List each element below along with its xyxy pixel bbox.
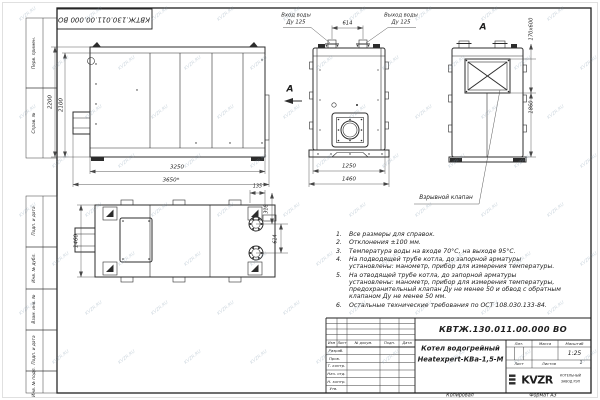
frame-label-vzam-inv: Взам. инв. № (32, 294, 36, 323)
row-label-nachotd: Нач. отд. (327, 372, 345, 376)
col-header-list: Лист (337, 342, 346, 346)
explosion-valve-label: Взрывной клапан (419, 196, 473, 202)
company-logo: KVZR (521, 374, 552, 385)
technical-notes: 1.Все размеры для справок. 2.Отклонения … (336, 231, 562, 310)
dim-pipe-spacing: 614 (342, 21, 352, 26)
note-item: 5.На отводящей трубе котла, до запорной … (336, 272, 562, 301)
drawing-linework (0, 0, 600, 400)
frame-label-inv-podl: Инв. № подл. (32, 367, 36, 397)
water-inlet-label: Вход воды (281, 13, 311, 18)
top-view-linework (75, 190, 288, 282)
format-label: Формат А3 (529, 394, 556, 399)
dim-front-width-outer: 1460 (342, 177, 356, 183)
row-label-razrab: Разраб. (329, 349, 344, 353)
note-item: 4.На подводящей трубе котла, до запорной… (336, 256, 562, 270)
dim-top-depth: 1460 (74, 234, 80, 248)
note-item: 3.Температура воды на входе 70°С, на вых… (336, 248, 562, 255)
lit-header: Лит. (515, 342, 524, 346)
copied-by-label: Копировал (446, 394, 473, 399)
row-label-tkontr: Т. контр. (328, 364, 346, 368)
mass-header: Масса (539, 342, 551, 346)
dim-view-a-height: 1860 (529, 100, 534, 113)
side-view-linework (51, 42, 269, 187)
col-header-podp: Подп. (384, 342, 395, 346)
company-sub-line1: КОТЕЛЬНЫЙ (560, 374, 581, 377)
company-sub-line2: ЗАВОД РЭП (561, 380, 580, 383)
frame-label-perv-primen: Перв. примен. (32, 37, 36, 69)
drawing-sheet: КВТЖ.130.011.00.000 ВО Перв. примен. Спр… (0, 0, 600, 400)
dim-valve-size: 170х600 (529, 18, 534, 41)
dim-top-614: 614 (275, 234, 280, 243)
view-arrow-letter: А (287, 86, 294, 95)
note-item: 1.Все размеры для справок. (336, 231, 562, 238)
note-text: Отклонения ±100 мм. (349, 239, 562, 246)
col-header-docnum: № докум. (355, 342, 373, 346)
dim-top-318: 318 (266, 204, 271, 213)
note-number: 2. (336, 239, 349, 246)
row-label-utv: Утв. (330, 387, 338, 391)
sheets-label: Листов (542, 362, 556, 366)
gost-frame (26, 8, 591, 393)
row-label-nkontr: Н. контр. (327, 380, 345, 384)
doc-number: КВТЖ.130.011.00.000 ВО (439, 325, 567, 333)
row-label-prov: Пров. (329, 357, 340, 361)
water-outlet-label: Выход воды (384, 13, 418, 18)
dim-length-inner: 3250 (170, 165, 184, 171)
frame-label-sprav-no: Справ. № (32, 113, 36, 134)
sheets-value: 1 (580, 362, 583, 367)
sheet-trim-border (3, 3, 598, 398)
product-name-line1: Котел водогрейный (421, 346, 500, 353)
note-number: 5. (336, 272, 349, 301)
frame-label-podp-data-1: Подп. и дата (32, 206, 36, 235)
scale-header: Масштаб (565, 342, 583, 346)
dim-front-width-inner: 1250 (342, 164, 356, 170)
product-name-line2: Heatexpert-КВа-1,5-М (418, 356, 504, 363)
view-a-linework (414, 41, 536, 204)
water-inlet-dn: Ду 125 (286, 20, 305, 25)
frame-label-podp-data-2: Подп. и дата (32, 335, 36, 364)
col-header-izm: Изм (328, 342, 335, 346)
note-number: 1. (336, 231, 349, 238)
note-item: 2.Отклонения ±100 мм. (336, 239, 562, 246)
dim-top-135: 135 (253, 186, 262, 191)
note-text: На подводящей трубе котла, до запорной а… (349, 256, 562, 270)
note-text: Все размеры для справок. (349, 231, 562, 238)
scale-value: 1:25 (568, 351, 581, 357)
dim-length-outer: 3650* (163, 178, 180, 184)
water-outlet-dn: Ду 125 (391, 20, 410, 25)
top-stamp-doc-number: КВТЖ.130.011.00.000 ВО (58, 16, 150, 23)
view-a-letter: А (480, 24, 487, 33)
note-number: 4. (336, 256, 349, 270)
sheet-label: Лист (514, 362, 524, 366)
note-text: Температура воды на входе 70°С, на выход… (349, 248, 562, 255)
note-number: 6. (336, 302, 349, 309)
note-item: 6.Остальные технические требования по ОС… (336, 302, 562, 309)
note-text: Остальные технические требования по ОСТ … (349, 302, 562, 309)
frame-label-inv-dubl: Инв. № дубл. (32, 253, 36, 282)
note-number: 3. (336, 248, 349, 255)
dim-height-outer: 2200 (48, 95, 54, 109)
dim-height-inner: 2100 (59, 98, 65, 112)
col-header-data: Дата (402, 342, 411, 346)
note-text: На отводящей трубе котла, до запорной ар… (349, 272, 562, 301)
